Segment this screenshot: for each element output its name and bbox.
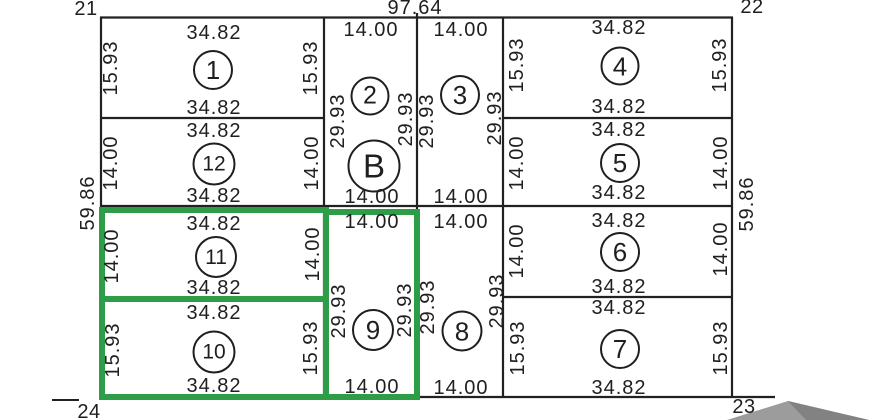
- lot-2-number: 2: [363, 84, 377, 109]
- lot-12-number-circle: 12: [193, 143, 236, 186]
- lot-5-number: 5: [613, 150, 627, 176]
- lot-12-dim-top: 34.82: [186, 121, 241, 141]
- lot-6-dim-left: 14.00: [507, 223, 527, 278]
- lot-4-number: 4: [613, 53, 627, 79]
- lot-9-dim-top: 14.00: [344, 212, 399, 232]
- boundary-right-total: 59.86: [737, 176, 757, 231]
- lot-6-dim-right: 14.00: [711, 221, 731, 276]
- lot-6-number: 6: [613, 239, 627, 265]
- lot-12-dim-right: 14.00: [302, 135, 322, 190]
- lot-4-number-circle: 4: [601, 47, 640, 86]
- lot-7-dim-top: 34.82: [591, 298, 646, 318]
- lot-1-dim-bottom: 34.82: [186, 98, 241, 118]
- lot-9-number-circle: 9: [352, 309, 394, 351]
- corner-marker-24: 24: [77, 402, 100, 420]
- lot-2-number-circle: 2: [351, 77, 390, 116]
- lot-4-dim-left: 15.93: [507, 37, 527, 92]
- lot-3-dim-right: 29.93: [485, 90, 505, 145]
- lot-12-dim-bottom: 34.82: [186, 186, 241, 206]
- lot-8-number-circle: 8: [442, 311, 483, 352]
- block-b-circle: B: [348, 140, 401, 193]
- lot-9-number: 9: [366, 317, 380, 343]
- lot-5-dim-right: 14.00: [711, 135, 731, 190]
- lot-5-dim-bottom: 34.82: [591, 183, 646, 203]
- lot-10-dim-top: 34.82: [186, 303, 241, 323]
- corner-marker-23: 23: [732, 397, 755, 417]
- lot-5-number-circle: 5: [600, 143, 640, 183]
- lot-6-number-circle: 6: [600, 232, 640, 272]
- block-b-label: B: [363, 150, 385, 183]
- lot-10-dim-bottom: 34.82: [186, 376, 241, 396]
- lot-11-dim-left: 14.00: [102, 228, 122, 283]
- lot-3-number: 3: [453, 82, 467, 108]
- lot-1-dim-left: 15.93: [101, 40, 121, 95]
- lot-9-dim-right: 29.93: [395, 282, 415, 337]
- lot-8-number: 8: [455, 318, 469, 344]
- lot-8-dim-bottom: 14.00: [433, 378, 488, 398]
- lot-7-dim-bottom: 34.82: [591, 378, 646, 398]
- lot-11-dim-bottom: 34.82: [186, 278, 241, 298]
- lot-10-number-circle: 10: [193, 331, 236, 374]
- lot-12-dim-left: 14.00: [101, 135, 121, 190]
- lot-2-dim-right: 29.93: [396, 91, 416, 146]
- lot-4-dim-right: 15.93: [710, 37, 730, 92]
- corner-marker-22: 22: [740, 0, 763, 17]
- lot-8-dim-left: 29.93: [418, 279, 438, 334]
- lot-12-number: 12: [202, 154, 225, 175]
- lot-6-dim-bottom: 34.82: [591, 277, 646, 297]
- lot-4-dim-bottom: 34.82: [591, 97, 646, 117]
- lot-8-dim-top: 14.00: [433, 212, 488, 232]
- lot-3-dim-top: 14.00: [433, 20, 488, 40]
- lot-5-dim-left: 14.00: [507, 135, 527, 190]
- corner-marker-21: 21: [74, 0, 97, 19]
- lot-3-dim-bottom: 14.00: [433, 187, 488, 207]
- lot-1-number-circle: 1: [193, 50, 233, 90]
- lot-1-number: 1: [206, 57, 220, 83]
- lot-6-dim-top: 34.82: [591, 211, 646, 231]
- lot-10-dim-left: 15.93: [103, 322, 123, 377]
- lot-5-dim-top: 34.82: [591, 120, 646, 140]
- lot-11-dim-top: 34.82: [186, 214, 241, 234]
- lot-2-dim-left: 29.93: [328, 93, 348, 148]
- lot-4-dim-top: 34.82: [591, 18, 646, 38]
- lot-11-number-circle: 11: [195, 236, 237, 278]
- boundary-left-total: 59.86: [78, 175, 98, 230]
- lot-3-dim-left: 29.93: [417, 93, 437, 148]
- lot-1-dim-top: 34.82: [186, 23, 241, 43]
- lot-10-dim-right: 15.93: [301, 320, 321, 375]
- lot-2-dim-top: 14.00: [343, 20, 398, 40]
- lot-11-number: 11: [205, 247, 227, 268]
- boundary-top-total: 97.64: [387, 0, 442, 18]
- lot-7-dim-left: 15.93: [508, 320, 528, 375]
- lot-3-number-circle: 3: [440, 75, 480, 115]
- lot-8-dim-right: 29.93: [487, 273, 507, 328]
- lot-1-dim-right: 15.93: [301, 40, 321, 95]
- lot-7-number-circle: 7: [600, 329, 640, 369]
- lot-7-number: 7: [613, 336, 627, 362]
- lot-9-dim-left: 29.93: [329, 283, 349, 338]
- lot-9-dim-bottom: 14.00: [344, 377, 399, 397]
- lot-7-dim-right: 15.93: [711, 320, 731, 375]
- lot-10-number: 10: [202, 342, 225, 363]
- plat-survey-diagram: 97.64 59.86 59.86 21 22 23 24 34.82 34.8…: [0, 0, 870, 420]
- lot-11-dim-right: 14.00: [303, 226, 323, 281]
